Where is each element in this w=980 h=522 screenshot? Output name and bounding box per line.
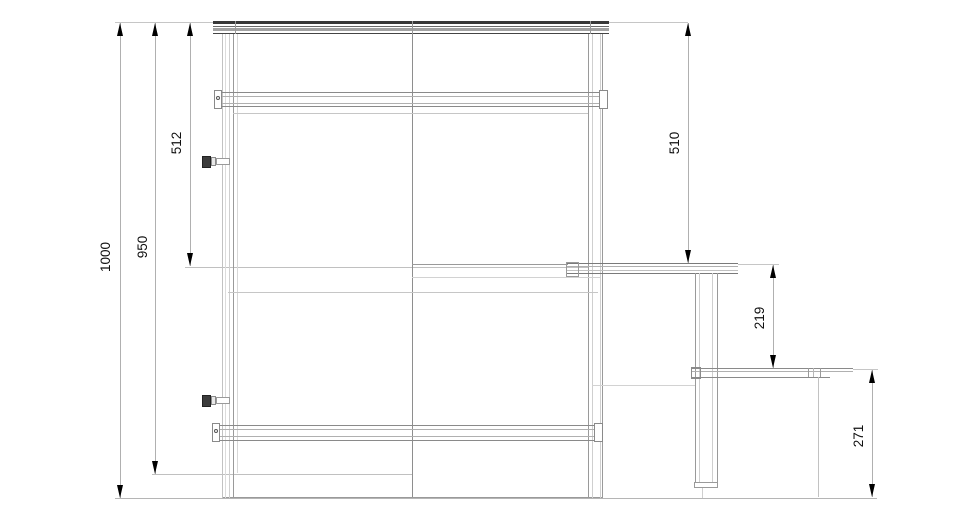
desk-under-line <box>412 277 600 278</box>
lower-rail-right-cap <box>594 423 603 442</box>
arrowhead-up <box>770 265 776 278</box>
technical-drawing-canvas: 1000 950 512 510 219 271 <box>0 0 980 522</box>
dimension-frame-height-label: 950 <box>135 225 151 269</box>
cabinet-stretcher-line <box>592 385 695 386</box>
desk-leg-foot <box>694 482 718 488</box>
lower-cabinet-right-edge <box>818 377 819 497</box>
arrowhead-down <box>117 485 123 498</box>
floor-line <box>115 498 877 499</box>
arrowhead-down <box>187 253 193 266</box>
lower-rail-cap-hole <box>214 429 218 433</box>
frame-bottom-edge <box>222 497 603 498</box>
top-panel-edge-top <box>213 21 609 24</box>
upper-rail-right-cap <box>599 90 608 109</box>
arrowhead-up <box>117 23 123 36</box>
step-shelf-left-cap <box>691 367 701 379</box>
top-panel-seam-right <box>590 21 591 34</box>
arrowhead-up <box>685 23 691 36</box>
top-panel-band <box>213 28 609 31</box>
bed-level-line <box>185 267 588 268</box>
arrowhead-down <box>152 461 158 474</box>
arrowhead-up <box>187 23 193 36</box>
dimension-desk-to-step-label: 219 <box>752 296 768 340</box>
arrowhead-down <box>770 355 776 368</box>
dimension-step-to-floor-label: 271 <box>851 414 867 458</box>
dimension-right-upper-span-label: 510 <box>667 121 683 165</box>
mid-panel-line <box>228 292 598 293</box>
dimension-left-upper-span-label: 512 <box>169 121 185 165</box>
upper-rail-cap-hole <box>216 96 220 100</box>
inner-panel-edge <box>237 34 238 473</box>
top-panel-seam-center <box>412 21 413 34</box>
arrowhead-up <box>869 370 875 383</box>
top-panel <box>213 21 609 34</box>
top-panel-seam-left <box>235 21 236 34</box>
arrowhead-down <box>869 484 875 497</box>
top-panel-groove <box>213 26 609 27</box>
arrowhead-down <box>685 250 691 263</box>
desk-left-bracket <box>566 262 579 277</box>
dimension-overall-height-label: 1000 <box>98 235 114 279</box>
upper-rail-shadow-line <box>233 113 588 114</box>
arrowhead-up <box>152 23 158 36</box>
frame-inner-bottom-line <box>152 474 412 475</box>
